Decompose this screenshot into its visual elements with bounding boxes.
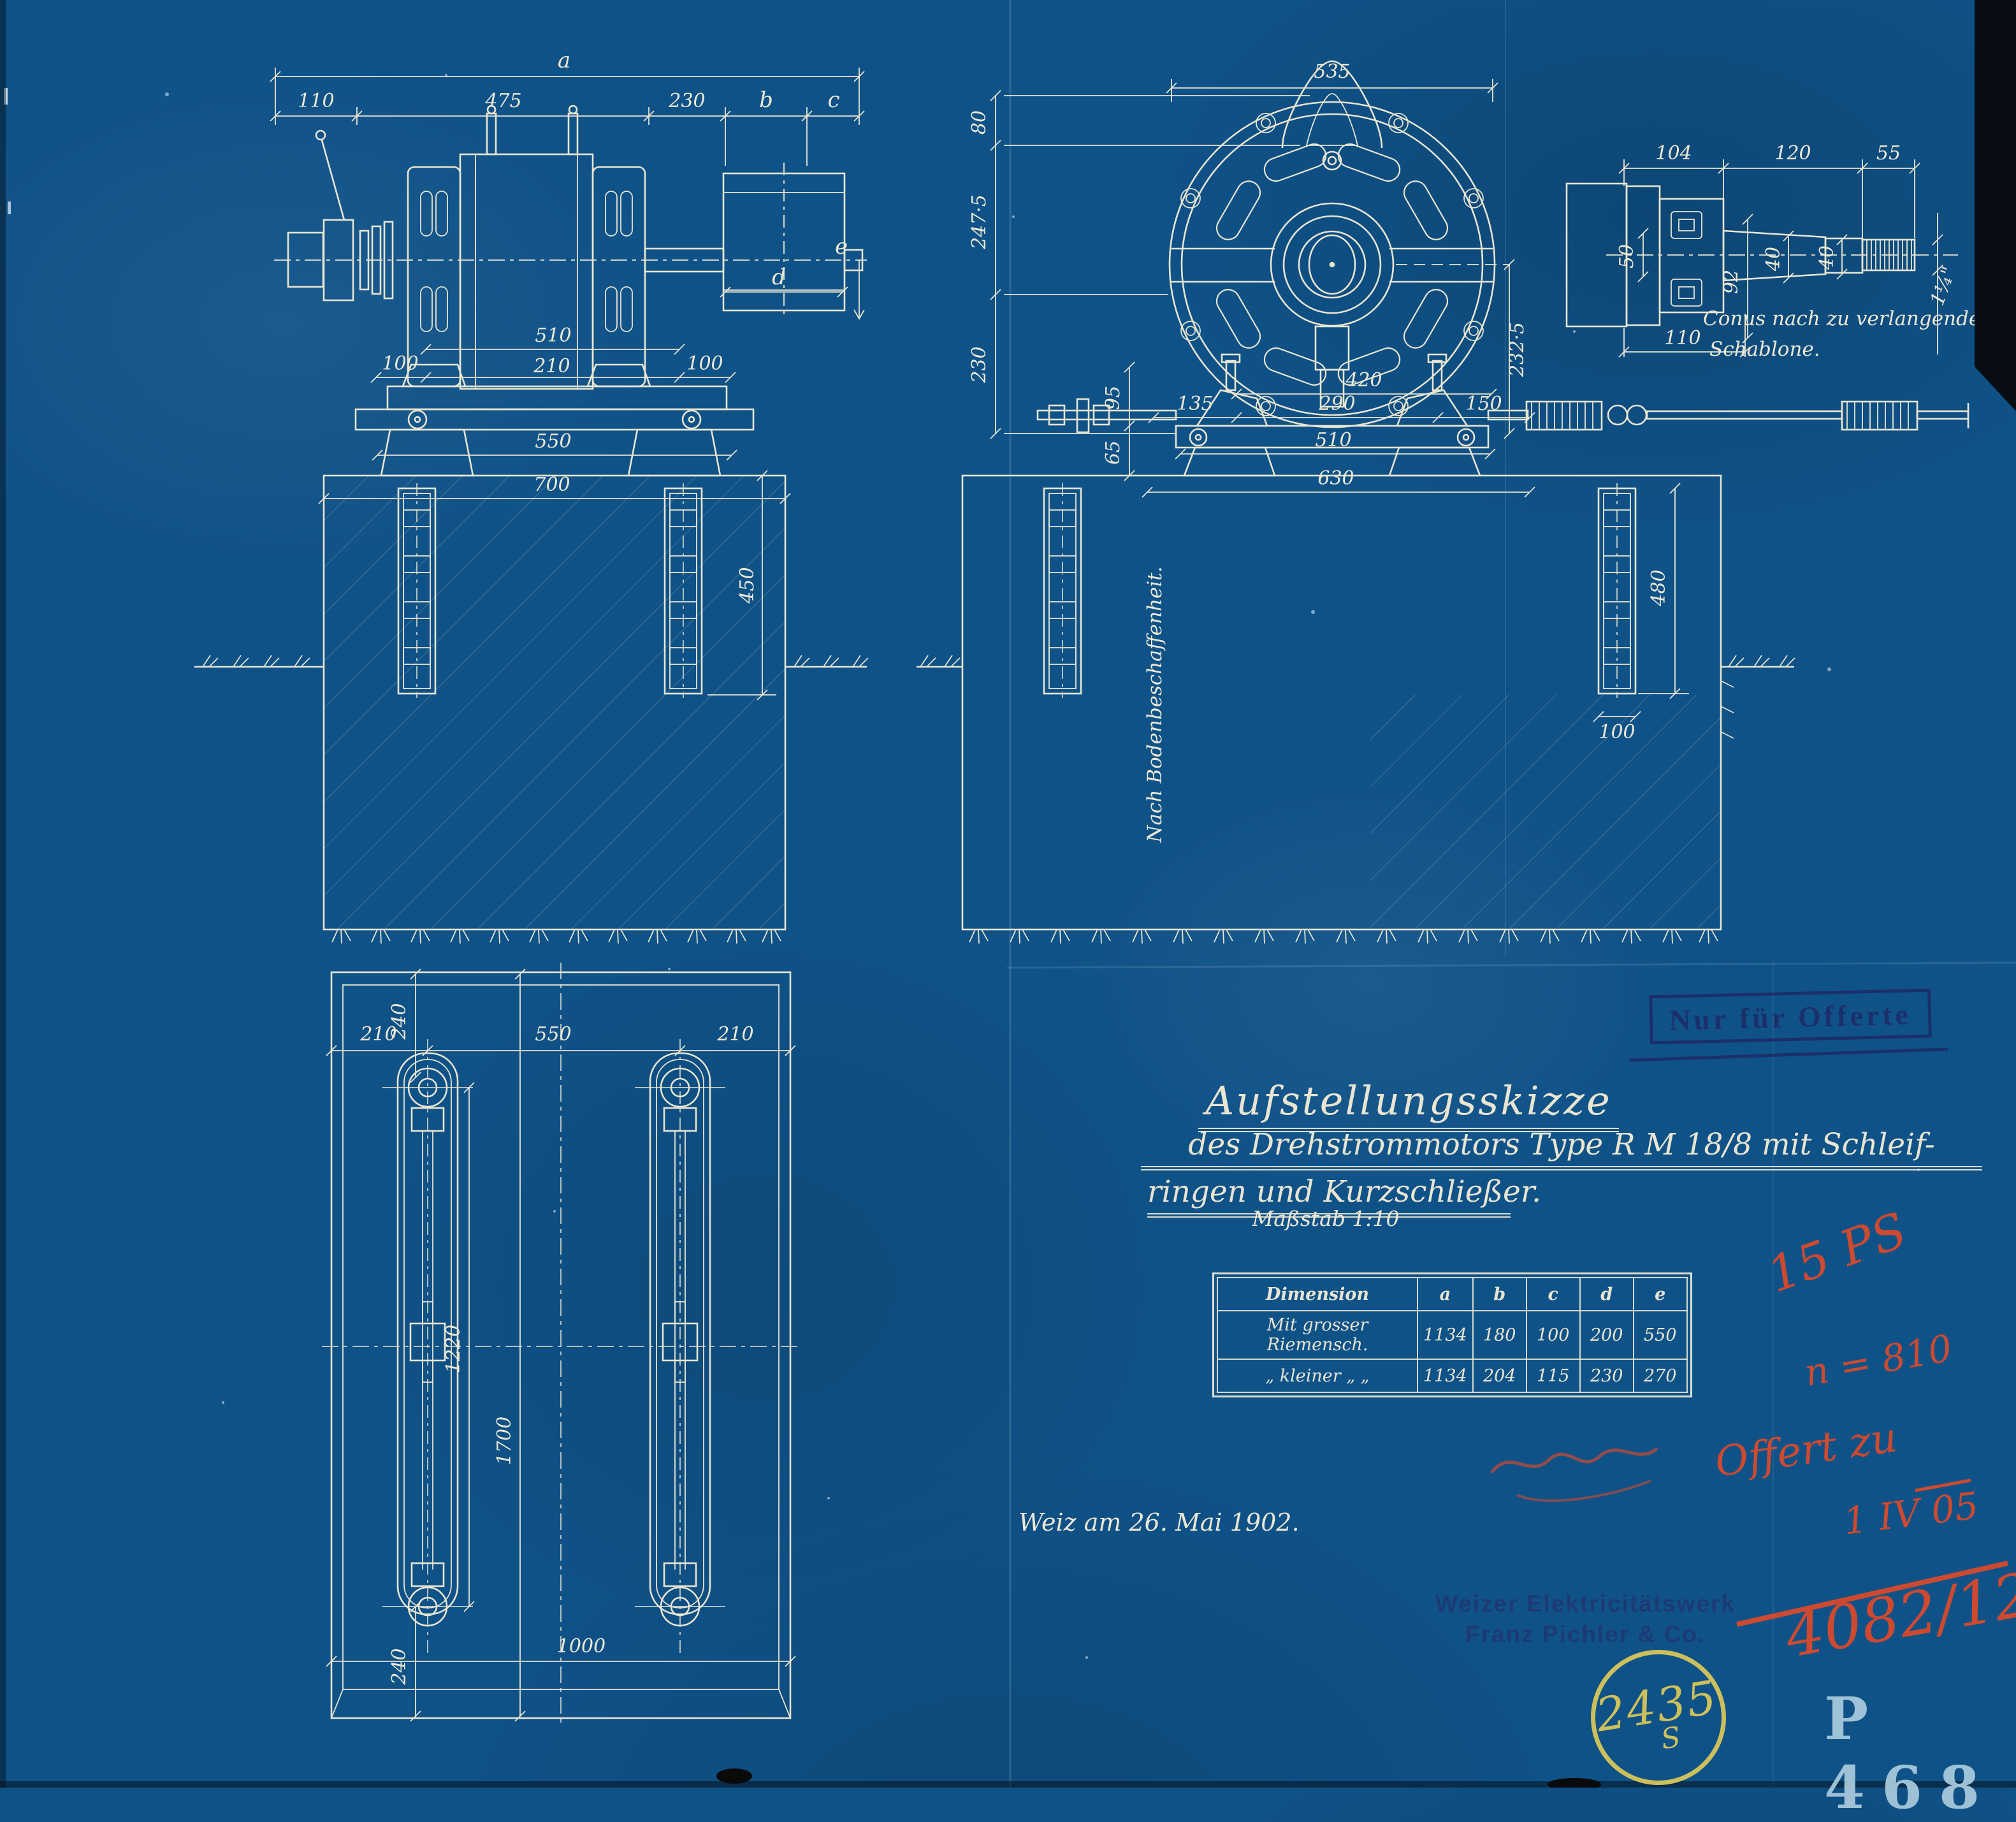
dim-label: 1¼" [1926,264,1961,309]
table-row: „ kleiner „ „ 1134 204 115 230 270 [1217,1359,1687,1392]
dim-label: 150 [1465,393,1502,415]
table-cell: 100 [1527,1311,1580,1359]
dim-label: 100 [382,353,418,375]
table-cell: 1134 [1418,1311,1473,1359]
dim-label: 247·5 [968,194,990,250]
blueprint-scan: { "colors": { "paper_blue": "#0f5288", "… [0,0,2016,1788]
red-signature-scribble [1491,1448,1657,1473]
table-cell: 1134 [1418,1359,1473,1392]
dim-label: c [827,87,839,113]
table-header-dimension: Dimension [1217,1278,1418,1311]
foundation-block [324,476,785,929]
dim-label: 232·5 [1506,322,1528,377]
dim-label: 104 [1655,142,1692,164]
dim-label: 1220 [442,1325,465,1373]
table-cell: 200 [1580,1311,1634,1359]
table-cell: 115 [1527,1359,1580,1392]
anchor-bolt-plan [635,1039,725,1655]
dim-label: 40 [1762,247,1785,272]
side-elevation-view [194,68,867,929]
table-cell: Mit grosser Riemensch. [1217,1311,1418,1359]
table-cell: „ kleiner „ „ [1217,1359,1418,1392]
dim-label: 240 [388,1003,410,1040]
drawing-title-line2: des Drehstrommotors Type R M 18/8 mit Sc… [1141,1127,1982,1170]
dim-label: 420 [1345,369,1382,391]
end-shield-right [593,167,645,386]
dim-label: 230 [968,346,990,383]
dim-label: 65 [1102,441,1124,465]
maker-stamp-line2: Franz Pichler & Co. [1435,1619,1736,1650]
dim-label: 40 [1816,245,1838,270]
foundation-note: Nach Bodenbeschaffenheit. [1143,566,1166,843]
dim-label: 510 [1315,429,1351,451]
dim-label: 210 [533,355,570,377]
anchor-channel [1044,483,1081,698]
dim-label: 630 [1317,467,1354,490]
detail-caption: Conus nach zu verlangenden [1703,307,1993,330]
tension-screw [1038,411,1176,419]
scale-note: Maßstab 1:10 [1224,1206,1428,1231]
detail-caption: Schablone. [1709,338,1820,361]
adjusting-rod [1488,402,1968,430]
table-header-b: b [1473,1278,1527,1311]
date-note: Weiz am 26. Mai 1902. [1019,1508,1300,1536]
dim-label: 110 [298,90,334,112]
terminal-post [487,113,496,154]
maker-stamp: Weizer Elektricitätswerk Franz Pichler &… [1435,1589,1736,1650]
dim-label: 92 [1720,270,1743,294]
maker-stamp-line1: Weizer Elektricitätswerk [1435,1589,1736,1619]
dim-label: 535 [1314,61,1350,83]
dim-label: 475 [484,90,521,112]
table-cell: 270 [1634,1359,1687,1392]
dim-label: 450 [736,567,758,604]
dim-label: 100 [1599,721,1635,743]
table-header-d: d [1580,1278,1634,1311]
offer-only-stamp-text: Nur für Offerte [1669,998,1911,1036]
dim-label: d [772,265,786,290]
dim-label: 120 [1774,142,1811,164]
dim-label: 100 [686,353,723,375]
table-row: Mit grosser Riemensch. 1134 180 100 200 … [1217,1311,1687,1359]
dim-label: 110 [1664,327,1701,349]
stator-barrel [460,154,593,389]
dim-label: 700 [533,474,570,496]
table-cell: 204 [1473,1359,1527,1392]
dim-label: 50 [1616,244,1638,268]
table-header-a: a [1418,1278,1473,1311]
table-header-row: Dimension a b c d e [1217,1278,1687,1311]
drawing-title-line1: Aufstellungsskizze [1198,1077,1619,1132]
offer-only-stamp: Nur für Offerte [1649,989,1932,1045]
dim-label: e [835,234,848,259]
dim-label: 1000 [557,1635,606,1658]
dim-label: 1700 [493,1417,516,1465]
dim-label: 510 [535,324,571,347]
table-cell: 550 [1634,1311,1687,1359]
table-cell: 230 [1580,1359,1634,1392]
dim-label: 240 [388,1648,410,1685]
dim-label: a [558,48,570,73]
terminal-post [569,113,577,154]
blueprint-drawing: a 110 475 230 b c d e 510 100 210 100 55… [0,0,2016,1788]
shaft-detail-labels: 104 120 55 50 92 40 40 1¼" 110 Conus nac… [1616,142,1993,361]
dim-label: 135 [1177,393,1213,415]
plate-number: P 468 [1824,1684,2016,1822]
anchor-channel [1599,483,1635,698]
dim-label: 230 [668,90,705,112]
table-header-c: c [1527,1278,1580,1311]
dimension-table: Dimension a b c d e Mit grosser Riemensc… [1212,1272,1692,1397]
dim-label: 55 [1876,142,1901,164]
table-cell: 180 [1473,1311,1527,1359]
front-elevation-view [917,61,1968,929]
dim-label: 80 [968,110,990,135]
registry-number: 2435 [1592,1670,1721,1742]
dim-label: b [759,87,773,113]
dim-label: 210 [716,1023,753,1046]
slide-rails [388,386,727,409]
dim-label: 95 [1102,386,1124,410]
shaft-hub [1660,199,1723,312]
dim-label: 290 [1318,393,1355,415]
dim-label: 480 [1648,569,1670,606]
dim-label: 550 [535,1023,571,1046]
dim-label: 550 [535,430,571,453]
table-header-e: e [1634,1278,1687,1311]
foundation-plan-view [322,963,800,1728]
